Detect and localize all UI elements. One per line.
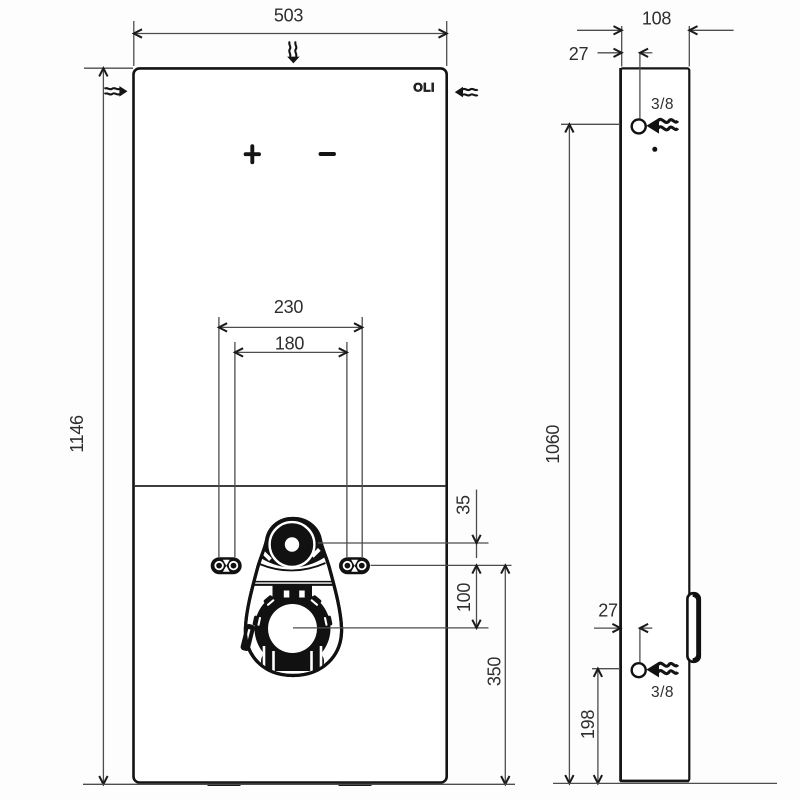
- svg-text:503: 503: [274, 6, 303, 26]
- svg-text:1146: 1146: [67, 415, 87, 453]
- svg-text:3/8: 3/8: [651, 96, 674, 113]
- svg-text:27: 27: [598, 601, 618, 621]
- svg-text:108: 108: [642, 8, 671, 28]
- svg-text:180: 180: [275, 333, 304, 353]
- svg-text:3/8: 3/8: [651, 684, 674, 701]
- svg-text:35: 35: [454, 495, 474, 515]
- svg-text:100: 100: [454, 583, 474, 612]
- svg-text:27: 27: [569, 44, 589, 64]
- svg-text:198: 198: [578, 710, 598, 739]
- svg-text:230: 230: [274, 297, 303, 317]
- svg-text:350: 350: [485, 657, 505, 686]
- svg-text:OLI: OLI: [413, 80, 434, 94]
- svg-text:1060: 1060: [543, 425, 563, 464]
